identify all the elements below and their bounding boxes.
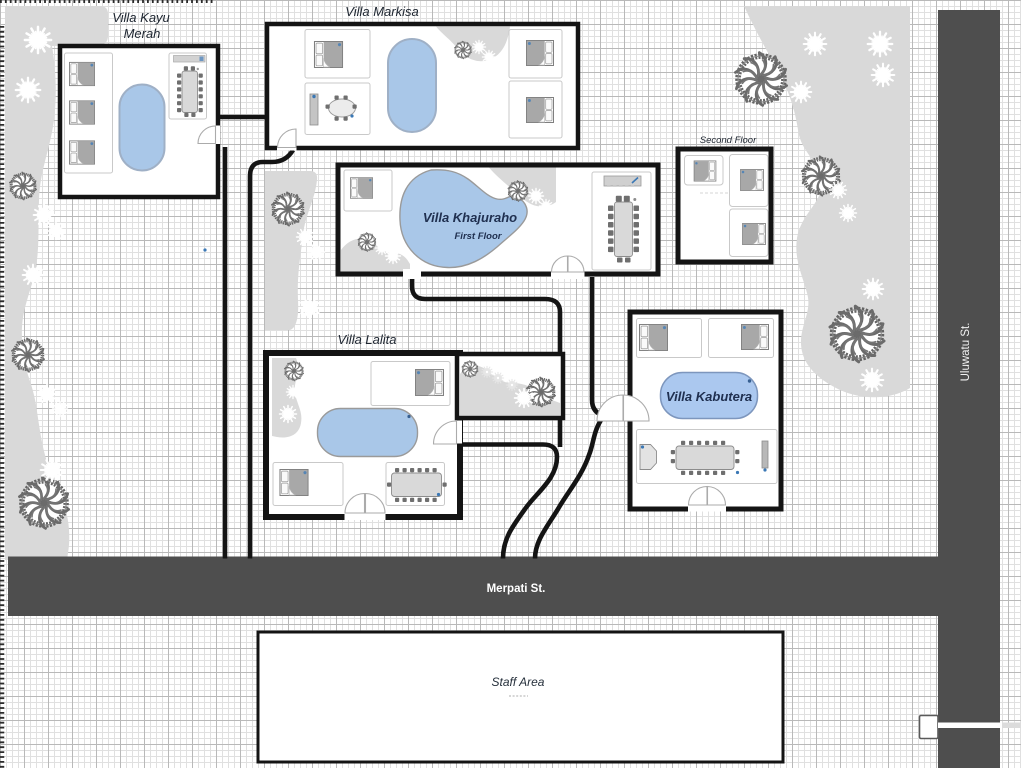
svg-text:Villa Kabutera: Villa Kabutera	[666, 389, 752, 404]
svg-text:Merpati St.: Merpati St.	[487, 583, 546, 595]
svg-text:Second Floor: Second Floor	[700, 135, 757, 146]
svg-text:Villa Lalita: Villa Lalita	[337, 332, 396, 347]
svg-text:Villa Khajuraho: Villa Khajuraho	[423, 210, 517, 225]
svg-text:First Floor: First Floor	[455, 231, 503, 242]
svg-text:Villa Markisa: Villa Markisa	[345, 4, 418, 19]
svg-text:Merah: Merah	[124, 26, 161, 41]
svg-text:Villa Kayu: Villa Kayu	[112, 10, 170, 25]
svg-text:Staff Area: Staff Area	[492, 675, 545, 689]
svg-text:Uluwatu St.: Uluwatu St.	[960, 323, 972, 382]
